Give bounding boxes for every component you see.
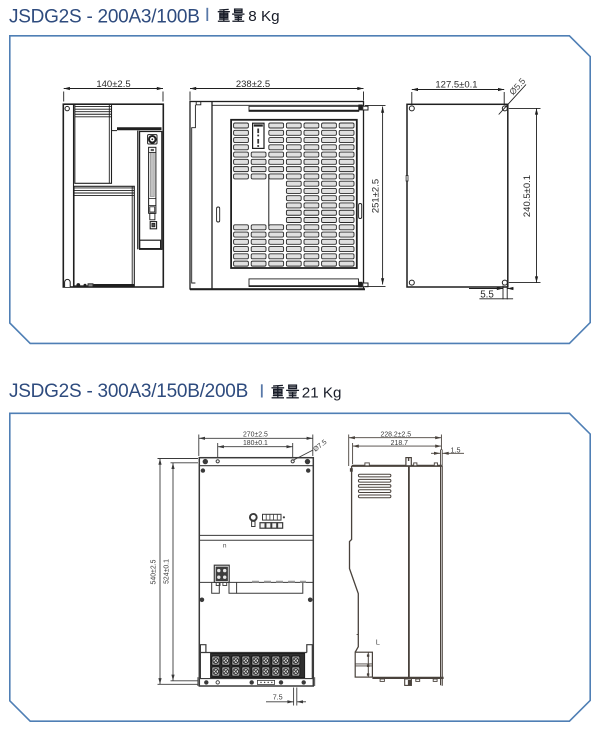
svg-text:180±0.1: 180±0.1	[243, 440, 268, 447]
svg-text:7.5: 7.5	[273, 692, 283, 701]
svg-text:540±2.5: 540±2.5	[151, 559, 158, 584]
svg-text:240.5±0.1: 240.5±0.1	[522, 175, 533, 217]
svg-text:n: n	[223, 542, 227, 549]
svg-text:8 Kg: 8 Kg	[248, 8, 279, 25]
svg-text:524±0.1: 524±0.1	[163, 559, 170, 584]
svg-text:JSDG2S - 300A3/150B/200B: JSDG2S - 300A3/150B/200B	[9, 381, 248, 402]
svg-text:127.5±0.1: 127.5±0.1	[435, 80, 477, 91]
svg-text:Ø7.5: Ø7.5	[312, 439, 328, 454]
svg-text:5.5: 5.5	[480, 289, 494, 300]
svg-text:21 Kg: 21 Kg	[302, 384, 342, 401]
svg-text:270±2.5: 270±2.5	[243, 431, 268, 438]
svg-text:L: L	[376, 637, 380, 646]
svg-text:JSDG2S - 200A3/100B: JSDG2S - 200A3/100B	[9, 7, 200, 28]
svg-text:251±2.5: 251±2.5	[371, 179, 382, 213]
